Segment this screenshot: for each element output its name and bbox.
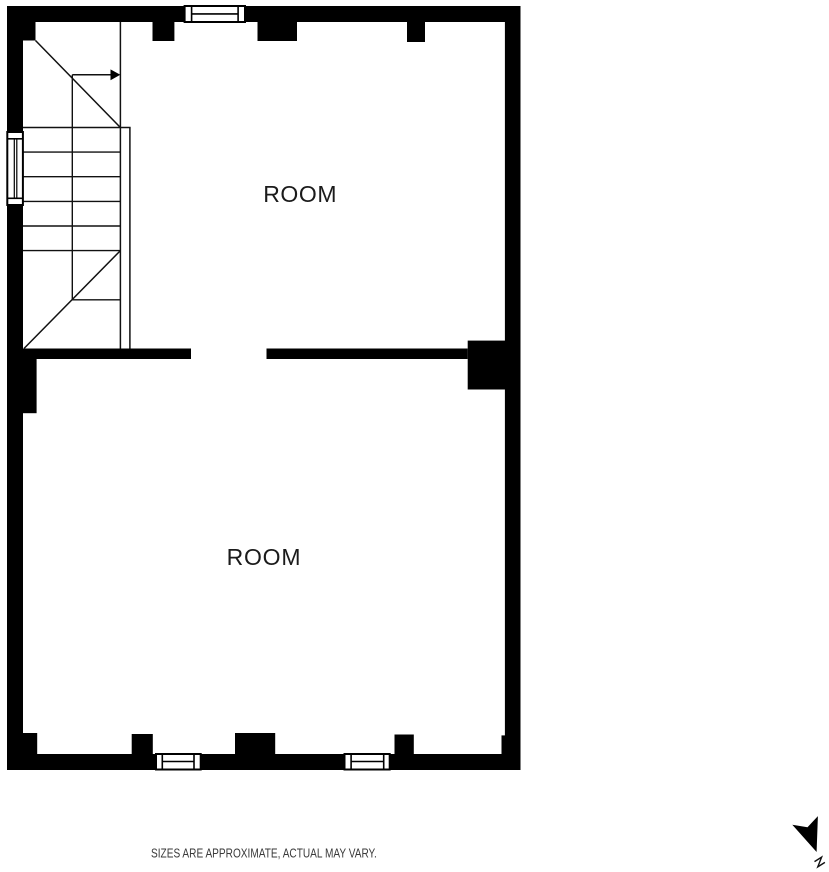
svg-text:ROOM: ROOM bbox=[227, 544, 302, 570]
svg-text:ROOM: ROOM bbox=[263, 181, 337, 207]
svg-text:SIZES ARE APPROXIMATE, ACTUAL: SIZES ARE APPROXIMATE, ACTUAL MAY VARY. bbox=[151, 847, 377, 861]
